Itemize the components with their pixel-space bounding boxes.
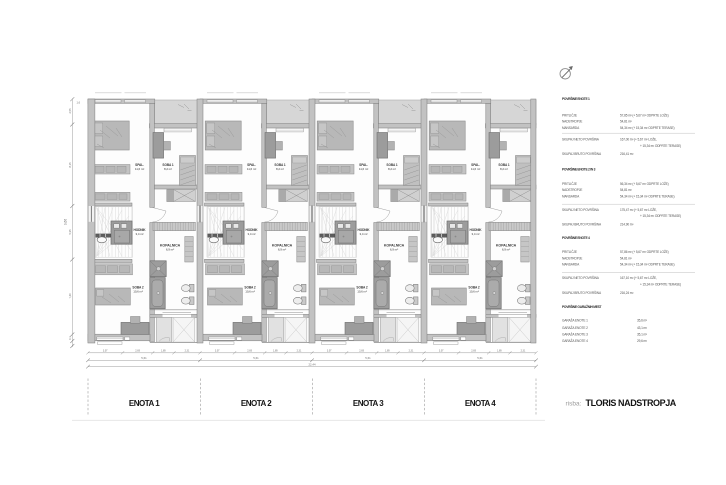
svg-text:MANSARDA: MANSARDA: [562, 194, 580, 198]
svg-text:PRITLIČJE: PRITLIČJE: [562, 181, 577, 186]
svg-text:54,81 m²: 54,81 m²: [620, 120, 632, 124]
svg-text:167,00 m² (+ 5,67 m² LOŽE,: 167,00 m² (+ 5,67 m² LOŽE,: [620, 137, 657, 142]
svg-text:3,07: 3,07: [103, 350, 108, 353]
svg-text:2,69: 2,69: [247, 350, 252, 353]
svg-text:216,24 m²: 216,24 m²: [620, 291, 633, 295]
svg-text:ENOTA 4: ENOTA 4: [465, 399, 496, 408]
svg-text:5,35: 5,35: [68, 229, 72, 235]
svg-text:43,1 m²: 43,1 m²: [637, 326, 647, 330]
svg-text:POVRŠINE ENOTE 1: POVRŠINE ENOTE 1: [562, 96, 590, 101]
svg-text:ENOTA 1: ENOTA 1: [129, 399, 160, 408]
svg-text:2,31: 2,31: [521, 350, 526, 353]
svg-text:167,10 m² (+ 5,67 m² LOŽE,: 167,10 m² (+ 5,67 m² LOŽE,: [620, 275, 657, 280]
svg-text:22,44: 22,44: [309, 363, 316, 367]
svg-text:8,2 m²: 8,2 m²: [500, 167, 508, 171]
svg-text:6,9 m²: 6,9 m²: [278, 248, 286, 252]
svg-text:+ 15,34 m² ODPRTE TERASE): + 15,34 m² ODPRTE TERASE): [640, 144, 681, 148]
svg-text:11,6 m²: 11,6 m²: [471, 167, 480, 171]
svg-text:10,6 m²: 10,6 m²: [133, 290, 143, 294]
svg-text:1,89: 1,89: [161, 350, 166, 353]
svg-text:5,61: 5,61: [141, 356, 147, 360]
svg-text:SKUPAJ BRUTO POVRŠINA: SKUPAJ BRUTO POVRŠINA: [562, 151, 602, 156]
svg-text:57,86 m² (+ 5,67 m² ODPRTE LOŽ: 57,86 m² (+ 5,67 m² ODPRTE LOŽE): [620, 249, 669, 254]
svg-text:7,40: 7,40: [68, 293, 72, 299]
svg-text:TLORIS NADSTROPJA: TLORIS NADSTROPJA: [586, 398, 677, 408]
svg-text:MANSARDA: MANSARDA: [562, 263, 580, 267]
svg-text:35,1 m²: 35,1 m²: [637, 333, 647, 337]
svg-text:54,81 m²: 54,81 m²: [620, 256, 632, 260]
svg-text:3,07: 3,07: [215, 350, 220, 353]
svg-text:175,47 m² (+ 5,67 m² LOŽE,: 175,47 m² (+ 5,67 m² LOŽE,: [620, 207, 657, 212]
svg-text:10,6 m²: 10,6 m²: [469, 290, 479, 294]
svg-text:214,90 m²: 214,90 m²: [620, 222, 633, 226]
svg-text:54,34 m² (+ 15,34 m² ODPRTE TE: 54,34 m² (+ 15,34 m² ODPRTE TERASE): [620, 263, 674, 267]
svg-text:0,7: 0,7: [68, 336, 72, 340]
svg-text:NADSTROPJE: NADSTROPJE: [562, 256, 582, 260]
svg-text:2,55: 2,55: [68, 108, 72, 114]
svg-text:SKUPAJ NETO POVRŠINA: SKUPAJ NETO POVRŠINA: [562, 207, 600, 212]
svg-text:SKUPAJ NETO POVRŠINA: SKUPAJ NETO POVRŠINA: [562, 137, 600, 142]
svg-text:MANSARDA: MANSARDA: [562, 126, 580, 130]
svg-text:3,4 m²: 3,4 m²: [360, 232, 368, 236]
svg-text:5,61: 5,61: [253, 356, 259, 360]
svg-text:GARAŽA ENOTE 3: GARAŽA ENOTE 3: [562, 332, 588, 337]
svg-text:risba:: risba:: [566, 401, 582, 408]
svg-text:9,66: 9,66: [64, 219, 68, 225]
svg-text:5,61: 5,61: [365, 356, 371, 360]
svg-text:POVRŠINE GARAŽNIH MEST: POVRŠINE GARAŽNIH MEST: [562, 304, 602, 309]
svg-text:2,69: 2,69: [471, 350, 476, 353]
svg-text:2,69: 2,69: [359, 350, 364, 353]
svg-text:54,34 m² (+ 15,34 m² ODPRTE TE: 54,34 m² (+ 15,34 m² ODPRTE TERASE): [620, 126, 674, 130]
svg-text:8,2 m²: 8,2 m²: [276, 167, 284, 171]
svg-text:PRITLIČJE: PRITLIČJE: [562, 249, 577, 254]
svg-text:POVRŠINE ENOTE 2 IN 3: POVRŠINE ENOTE 2 IN 3: [562, 167, 596, 172]
svg-text:2,31: 2,31: [185, 350, 190, 353]
svg-text:8,15: 8,15: [68, 162, 72, 168]
svg-text:54,34 m² (+ 15,34 m² ODPRTE TE: 54,34 m² (+ 15,34 m² ODPRTE TERASE): [620, 194, 674, 198]
svg-text:29,6 m²: 29,6 m²: [637, 339, 647, 343]
svg-text:GARAŽA ENOTE 2: GARAŽA ENOTE 2: [562, 325, 588, 330]
svg-text:57,85 m² (+ 5,67 m² ODPRTE LOŽ: 57,85 m² (+ 5,67 m² ODPRTE LOŽE): [620, 112, 669, 117]
svg-text:56,34 m² (+ 5,67 m² ODPRTE LOŽ: 56,34 m² (+ 5,67 m² ODPRTE LOŽE): [620, 181, 669, 186]
svg-text:ENOTA 3: ENOTA 3: [353, 399, 384, 408]
svg-text:SKUPAJ BRUTO POVRŠINA: SKUPAJ BRUTO POVRŠINA: [562, 221, 602, 226]
svg-text:10,6 m²: 10,6 m²: [357, 290, 367, 294]
svg-text:3,4 m²: 3,4 m²: [136, 232, 144, 236]
svg-text:2,31: 2,31: [409, 350, 414, 353]
svg-text:54,81 m²: 54,81 m²: [620, 188, 632, 192]
svg-text:2,31: 2,31: [297, 350, 302, 353]
svg-text:6,9 m²: 6,9 m²: [166, 248, 174, 252]
svg-text:NADSTROPJE: NADSTROPJE: [562, 188, 582, 192]
svg-text:GARAŽA ENOTE 1: GARAŽA ENOTE 1: [562, 317, 588, 322]
svg-text:5,61: 5,61: [477, 356, 483, 360]
svg-text:3,4 m²: 3,4 m²: [248, 232, 256, 236]
svg-text:POVRŠINE ENOTE 4: POVRŠINE ENOTE 4: [562, 235, 590, 240]
svg-text:GARAŽA ENOTE 4: GARAŽA ENOTE 4: [562, 338, 588, 343]
svg-text:216,41 m²: 216,41 m²: [620, 152, 633, 156]
svg-text:2,69: 2,69: [135, 350, 140, 353]
svg-text:11,6 m²: 11,6 m²: [247, 167, 256, 171]
svg-text:3,07: 3,07: [327, 350, 332, 353]
svg-text:1,89: 1,89: [273, 350, 278, 353]
svg-text:+ 15,34 m² ODPRTE TERASE): + 15,34 m² ODPRTE TERASE): [640, 282, 681, 286]
svg-text:+ 15,34 m² ODPRTE TERASE): + 15,34 m² ODPRTE TERASE): [640, 214, 681, 218]
svg-text:SKUPAJ BRUTO POVRŠINA: SKUPAJ BRUTO POVRŠINA: [562, 290, 602, 295]
svg-text:6,9 m²: 6,9 m²: [390, 248, 398, 252]
svg-text:35,6 m²: 35,6 m²: [637, 318, 647, 322]
svg-text:PRITLIČJE: PRITLIČJE: [562, 112, 577, 117]
svg-text:3,4 m²: 3,4 m²: [472, 232, 480, 236]
svg-text:3,07: 3,07: [439, 350, 444, 353]
svg-text:SKUPAJ NETO POVRŠINA: SKUPAJ NETO POVRŠINA: [562, 275, 600, 280]
svg-text:1,6: 1,6: [77, 101, 81, 105]
svg-text:NADSTROPJE: NADSTROPJE: [562, 120, 582, 124]
svg-text:10,6 m²: 10,6 m²: [245, 290, 255, 294]
svg-text:8,2 m²: 8,2 m²: [164, 167, 172, 171]
svg-text:ENOTA 2: ENOTA 2: [241, 399, 272, 408]
svg-text:8,2 m²: 8,2 m²: [388, 167, 396, 171]
svg-text:11,6 m²: 11,6 m²: [135, 167, 144, 171]
svg-text:11,6 m²: 11,6 m²: [359, 167, 368, 171]
svg-text:6,9 m²: 6,9 m²: [502, 248, 510, 252]
svg-text:1,89: 1,89: [497, 350, 502, 353]
svg-text:1,89: 1,89: [385, 350, 390, 353]
